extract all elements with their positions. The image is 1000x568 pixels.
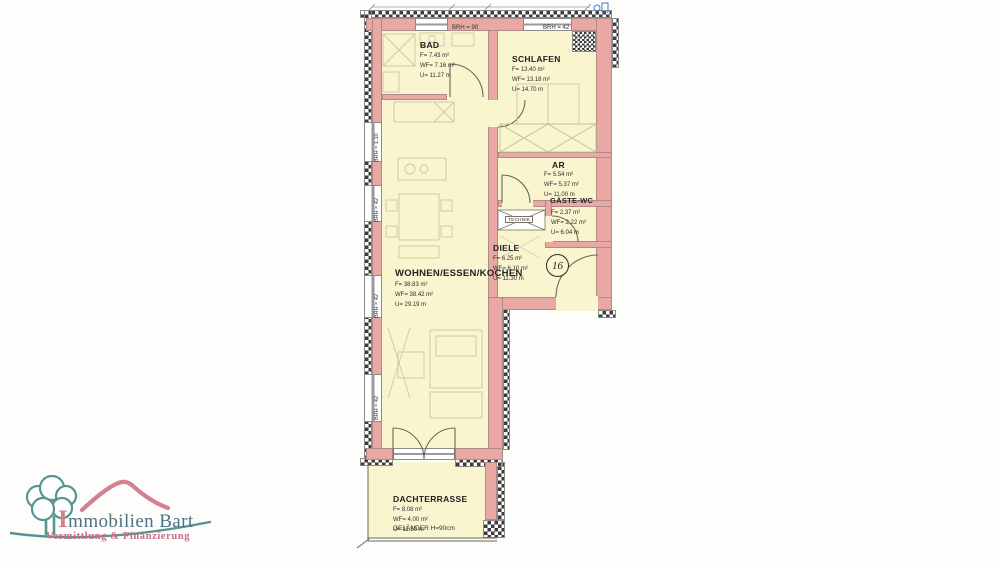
room-area-wohnen: F= 38.83 m² xyxy=(395,281,523,289)
room-name-wohnen: WOHNEN/ESSEN/KOCHEN xyxy=(395,268,523,279)
logo-brand-text: Immobilien Bart xyxy=(58,506,194,534)
door-opening-entry xyxy=(556,296,598,311)
room-wf-schlafen: WF= 13.18 m² xyxy=(512,76,561,84)
hatch-bottom-right-stub xyxy=(598,310,616,318)
wall-wc-bottom xyxy=(545,241,612,248)
window-bad-top xyxy=(415,18,448,31)
wall-right xyxy=(596,18,612,310)
room-details-gaeste-wc: F= 2.37 m² WF= 2.22 m² U= 6.04 m xyxy=(551,207,586,237)
room-area-gaeste-wc: F= 2.37 m² xyxy=(551,209,586,217)
room-name-schlafen: SCHLAFEN xyxy=(512,54,561,64)
room-wf-ar: WF= 5.37 m² xyxy=(544,181,579,189)
room-wf-dachterrasse: WF= 4.00 m² xyxy=(393,516,467,524)
room-u-bad: U= 11.27 m xyxy=(420,72,455,80)
hatch-shaft-schlafen xyxy=(572,31,596,52)
room-fill-left-column xyxy=(382,30,488,450)
room-area-schlafen: F= 13.40 m² xyxy=(512,66,561,74)
logo-tagline-text: Vermittlung & Finanzierung xyxy=(46,531,190,542)
hatch-living-right xyxy=(503,305,510,450)
door-opening-ar xyxy=(502,199,533,208)
wall-living-right xyxy=(488,297,503,450)
room-u-schlafen: U= 14.70 m xyxy=(512,86,561,94)
room-wf-gaeste-wc: WF= 2.22 m² xyxy=(551,219,586,227)
room-label-bad: BAD F= 7.43 m² WF= 7.16 m² U= 11.27 m xyxy=(420,40,455,80)
room-name-gaeste-wc: GÄSTE-WC xyxy=(550,196,593,205)
label-gelaender: GELÄNDER H=90cm xyxy=(393,525,455,532)
room-name-diele: DIELE xyxy=(493,243,528,253)
terrace-door-sill xyxy=(393,448,455,460)
wall-schlafen-bottom xyxy=(498,152,612,158)
room-area-ar: F= 5.54 m² xyxy=(544,171,579,179)
label-brh-left-3: BRH = 42 xyxy=(374,276,380,318)
hatch-terrace-corner xyxy=(483,520,505,538)
hatch-top xyxy=(360,10,612,18)
room-area-diele: F= 6.25 m² xyxy=(493,255,528,263)
hatch-terrace-right xyxy=(497,462,505,520)
label-brh-left-1: BRH = 1.10 xyxy=(374,120,380,162)
room-wf-wohnen: WF= 38.42 m² xyxy=(395,291,523,299)
room-u-gaeste-wc: U= 6.04 m xyxy=(551,229,586,237)
room-label-schlafen: SCHLAFEN F= 13.40 m² WF= 13.18 m² U= 14.… xyxy=(512,54,561,94)
room-label-wohnen: WOHNEN/ESSEN/KOCHEN F= 38.83 m² WF= 38.4… xyxy=(395,268,523,309)
room-name-dachterrasse: DACHTERRASSE xyxy=(393,494,467,504)
label-technik: TECHNIK xyxy=(505,216,533,223)
label-brh-left-2: BRH = 42 xyxy=(374,180,380,222)
label-brh-left-4: BRH = 42 xyxy=(374,378,380,420)
wall-bad-bottom xyxy=(382,94,447,100)
hatch-right-top xyxy=(612,18,619,68)
room-area-bad: F= 7.43 m² xyxy=(420,52,455,60)
room-label-gaeste-wc: GÄSTE-WC xyxy=(550,196,593,205)
room-details-ar: F= 5.54 m² WF= 5.37 m² U= 11.00 m xyxy=(544,169,579,199)
room-name-bad: BAD xyxy=(420,40,455,50)
door-opening-schlafen xyxy=(487,100,499,127)
wall-terrace-right xyxy=(485,462,497,520)
room-u-wohnen: U= 29.19 m xyxy=(395,301,523,309)
room-wf-bad: WF= 7.16 m² xyxy=(420,62,455,70)
unit-number-badge: 16 xyxy=(546,254,569,277)
label-brh-top-right: BRH = 42 xyxy=(543,25,569,31)
room-area-dachterrasse: F= 8.08 m² xyxy=(393,506,467,514)
label-brh-top-left: BRH = 90 xyxy=(452,25,478,31)
